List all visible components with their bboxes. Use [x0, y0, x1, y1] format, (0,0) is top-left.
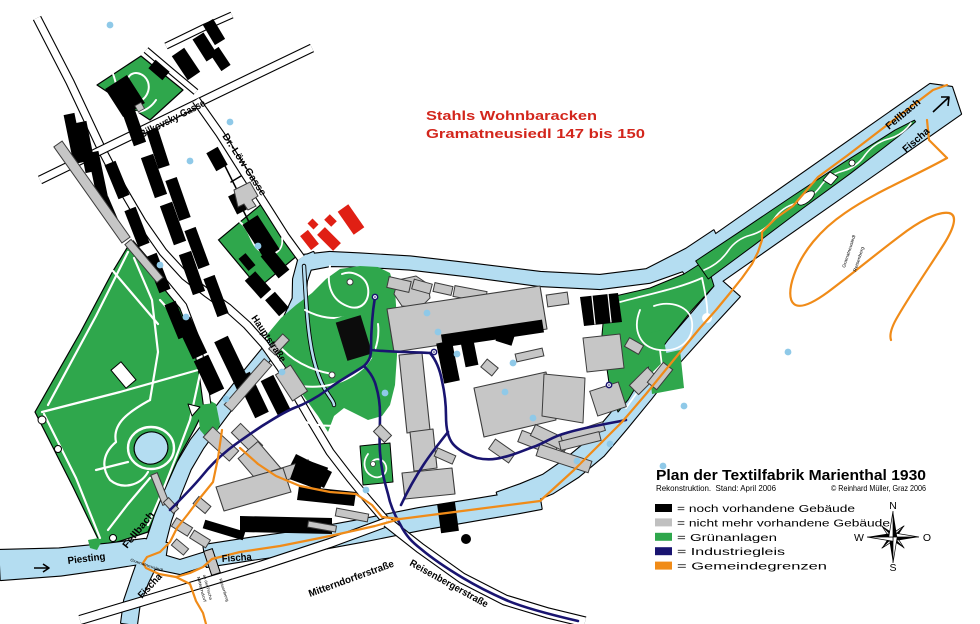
svg-text:N: N — [889, 500, 897, 512]
svg-text:W: W — [854, 532, 864, 544]
svg-text:Plan der Textilfabrik Marienth: Plan der Textilfabrik Marienthal 1930 — [656, 468, 926, 484]
svg-text:Stahls Wohnbaracken: Stahls Wohnbaracken — [426, 108, 597, 123]
svg-text:© Reinhard Müller, Graz 2006: © Reinhard Müller, Graz 2006 — [831, 483, 926, 493]
svg-text:Rekonstruktion. Stand: April: Rekonstruktion. Stand: April 2006 — [656, 483, 776, 493]
svg-text:= noch vorhandene Gebäude: = noch vorhandene Gebäude — [677, 504, 856, 515]
svg-text:Gramatneusiedl 147 bis 150: Gramatneusiedl 147 bis 150 — [426, 126, 645, 141]
svg-text:O: O — [923, 532, 931, 544]
svg-text:= Gemeindegrenzen: = Gemeindegrenzen — [677, 562, 827, 573]
svg-text:S: S — [889, 562, 896, 574]
svg-text:= Industriegleis: = Industriegleis — [677, 547, 785, 558]
svg-text:= Grünanlagen: = Grünanlagen — [677, 533, 777, 544]
svg-text:= nicht mehr vorhandene Gebäud: = nicht mehr vorhandene Gebäude — [677, 518, 891, 529]
svg-text:Fischa: Fischa — [221, 552, 252, 565]
